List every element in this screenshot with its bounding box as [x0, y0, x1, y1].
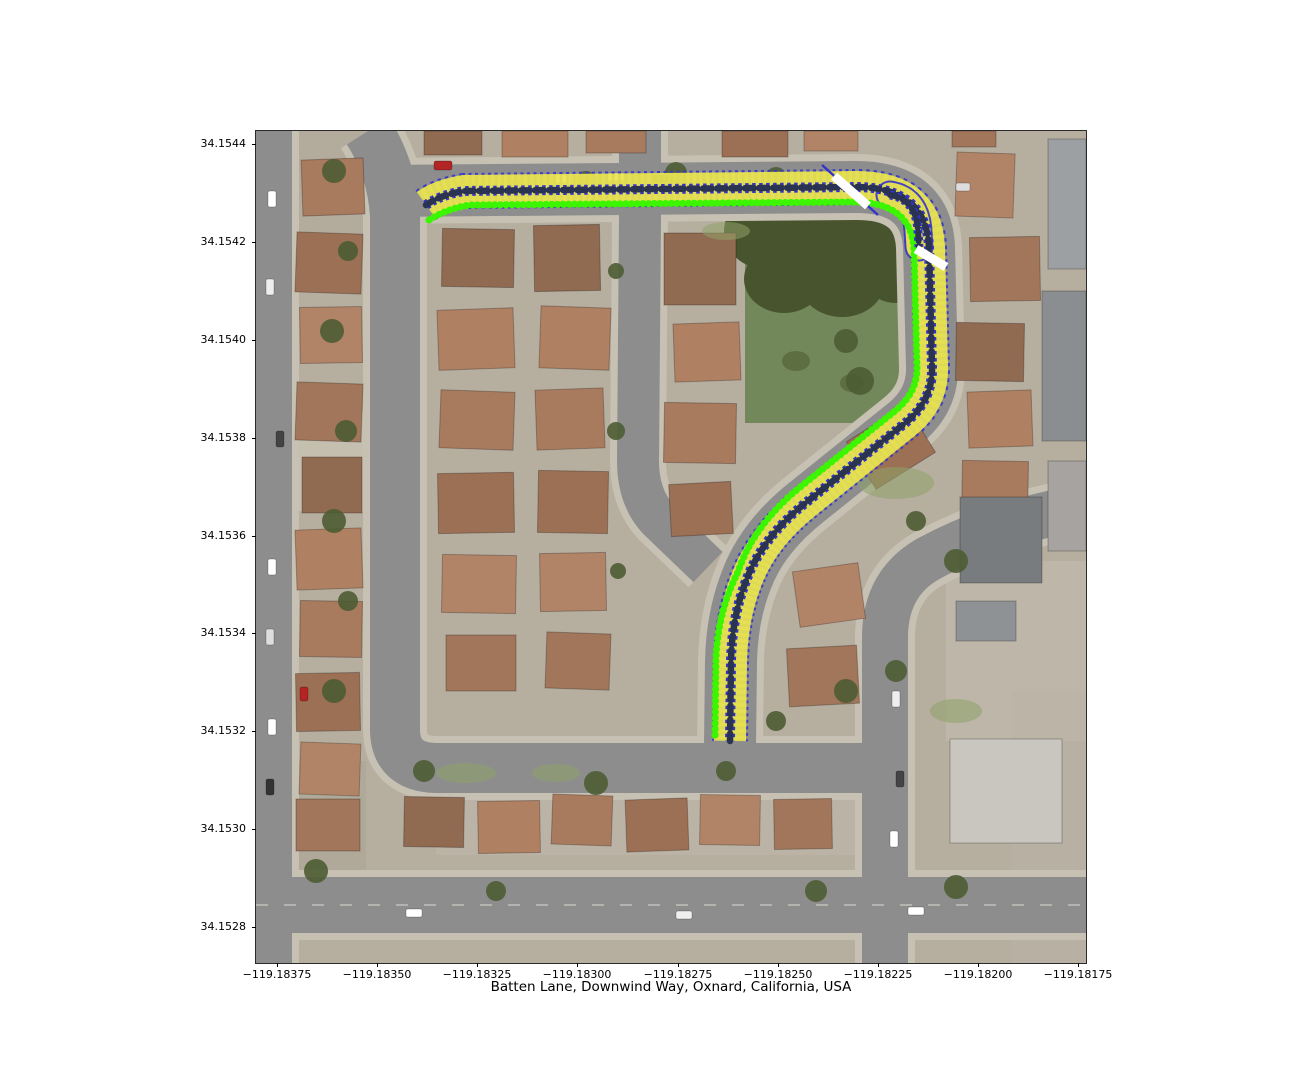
house-roof — [441, 554, 516, 613]
car — [892, 691, 900, 707]
building-roof — [956, 601, 1016, 641]
building-roof — [960, 497, 1042, 583]
house-roof — [700, 794, 761, 845]
x-tick-mark — [678, 963, 679, 967]
house-roof — [664, 233, 736, 305]
house-roof — [295, 528, 363, 590]
tree — [320, 319, 344, 343]
tree — [716, 761, 736, 781]
car — [890, 831, 898, 847]
car — [268, 719, 276, 735]
house-roof — [299, 742, 361, 796]
x-tick-mark — [778, 963, 779, 967]
house-roof — [424, 131, 482, 155]
x-tick-mark — [377, 963, 378, 967]
tree — [486, 881, 506, 901]
building-roof — [1048, 139, 1086, 269]
x-tick-mark — [277, 963, 278, 967]
lawn-patch — [702, 222, 750, 240]
tree — [906, 511, 926, 531]
lawn-patch — [930, 699, 982, 723]
house-roof — [669, 481, 734, 536]
house-roof — [586, 131, 646, 153]
y-tick-mark — [252, 144, 256, 145]
y-tick-label: 34.1532 — [186, 724, 246, 738]
car — [434, 161, 452, 170]
house-roof — [969, 236, 1040, 301]
house-roof — [404, 796, 465, 847]
house-roof — [437, 308, 515, 371]
y-tick-label: 34.1528 — [186, 920, 246, 934]
y-tick-mark — [252, 340, 256, 341]
y-tick-mark — [252, 536, 256, 537]
figure-root: 34.154434.154234.154034.153834.153634.15… — [0, 0, 1305, 1080]
tree — [944, 549, 968, 573]
building-roof — [1048, 461, 1086, 551]
tree — [608, 263, 624, 279]
car — [266, 779, 274, 795]
plot-area — [256, 131, 1086, 963]
y-tick-mark — [252, 438, 256, 439]
house-roof — [804, 131, 858, 151]
tree — [846, 367, 874, 395]
y-tick-label: 34.1538 — [186, 431, 246, 445]
x-tick-mark — [577, 963, 578, 967]
house-roof — [441, 228, 514, 287]
car — [908, 907, 924, 915]
house-roof — [792, 563, 865, 628]
x-tick-mark — [1078, 963, 1079, 967]
y-tick-mark — [252, 242, 256, 243]
x-axis-label: Batten Lane, Downwind Way, Oxnard, Calif… — [256, 979, 1086, 995]
y-tick-mark — [252, 829, 256, 830]
house-roof — [437, 472, 514, 533]
lawn-patch — [436, 763, 496, 783]
x-tick-mark — [477, 963, 478, 967]
tree — [834, 679, 858, 703]
car — [956, 183, 970, 191]
y-tick-label: 34.1542 — [186, 235, 246, 249]
house-roof — [545, 632, 611, 690]
tree — [322, 509, 346, 533]
car — [676, 911, 692, 919]
car — [276, 431, 284, 447]
y-tick-label: 34.1534 — [186, 626, 246, 640]
house-roof — [302, 457, 362, 513]
tree — [322, 159, 346, 183]
tree — [766, 711, 786, 731]
tree — [413, 760, 435, 782]
house-roof — [533, 224, 600, 291]
tree — [885, 660, 907, 682]
house-roof — [952, 131, 996, 147]
tree — [335, 420, 357, 442]
tree — [944, 875, 968, 899]
tree — [805, 880, 827, 902]
y-tick-mark — [252, 633, 256, 634]
car — [896, 771, 904, 787]
house-roof — [955, 322, 1024, 381]
car — [266, 279, 274, 295]
tree — [610, 563, 626, 579]
x-tick-mark — [978, 963, 979, 967]
house-roof — [673, 322, 741, 382]
car — [266, 629, 274, 645]
house-roof — [502, 131, 568, 157]
tree — [834, 329, 858, 353]
y-tick-label: 34.1530 — [186, 822, 246, 836]
house-roof — [551, 794, 613, 846]
house-roof — [446, 635, 516, 691]
house-roof — [295, 232, 363, 294]
x-tick-mark — [878, 963, 879, 967]
house-roof — [967, 390, 1033, 448]
house-roof — [535, 388, 605, 450]
y-tick-mark — [252, 731, 256, 732]
house-roof — [537, 470, 608, 533]
building-roof — [1042, 291, 1086, 441]
car — [406, 909, 422, 917]
y-tick-label: 34.1544 — [186, 137, 246, 151]
car — [268, 191, 276, 207]
tree — [584, 771, 608, 795]
car — [300, 687, 308, 701]
y-tick-label: 34.1540 — [186, 333, 246, 347]
house-roof — [625, 798, 689, 852]
house-roof — [539, 306, 611, 370]
tree — [607, 422, 625, 440]
house-roof — [539, 552, 606, 611]
house-roof — [663, 402, 736, 463]
house-roof — [478, 800, 541, 853]
car — [268, 559, 276, 575]
y-tick-label: 34.1536 — [186, 529, 246, 543]
building-roof — [950, 739, 1062, 843]
tree — [322, 679, 346, 703]
house-roof — [722, 131, 788, 157]
tree — [338, 591, 358, 611]
tree — [304, 859, 328, 883]
tree — [338, 241, 358, 261]
lawn-patch — [532, 764, 580, 782]
house-roof — [439, 390, 515, 451]
y-tick-mark — [252, 927, 256, 928]
house-roof — [296, 799, 360, 851]
map-canvas — [256, 131, 1086, 963]
house-roof — [774, 798, 833, 849]
